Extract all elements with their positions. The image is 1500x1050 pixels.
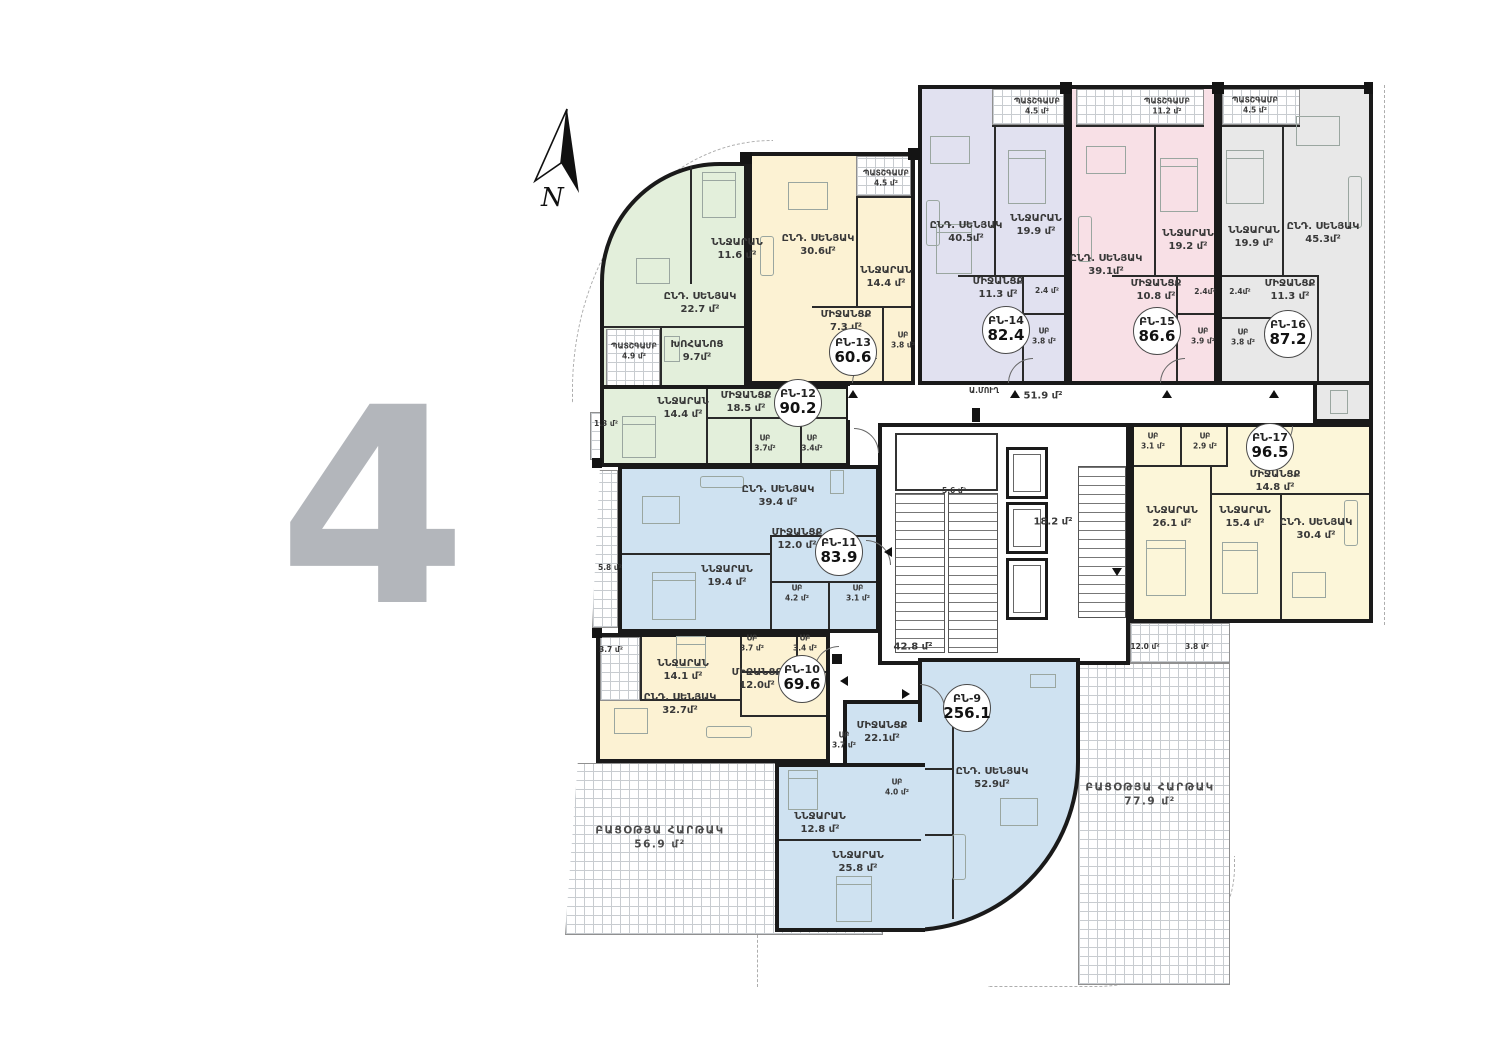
room-label: ԸՆԴ. ՍԵՆՅԱԿ39.1մ²	[1070, 252, 1143, 278]
floor-number: 4	[278, 398, 467, 621]
bed-furniture	[702, 172, 736, 218]
room-label: ՄԻՋԱՆՑՔ11.3 մ²	[973, 275, 1024, 301]
room-label: ՍԲ3.4մ²	[801, 433, 822, 453]
wall-pier	[1364, 82, 1373, 94]
bed-furniture	[1222, 542, 1258, 594]
entrance-arrow	[1162, 390, 1172, 398]
room-label: ՍԲ3.8 մ²	[1032, 326, 1056, 346]
sofa-furniture	[952, 834, 966, 880]
apartment-badge-bn-16: ԲՆ-1687.2	[1264, 310, 1312, 358]
room-label: ԸՆԴ. ՍԵՆՅԱԿ32.7մ²	[644, 691, 717, 717]
room-label: ՍԲ2.9 մ²	[1193, 431, 1217, 451]
garbage-chute-box	[972, 408, 980, 422]
room-label: ՆՆՋԱՐԱՆ26.1 մ²	[1146, 504, 1197, 530]
room-label: ՆՆՋԱՐԱՆ14.4 մ²	[657, 395, 708, 421]
room-label: ՆՆՋԱՐԱՆ12.8 մ²	[794, 810, 845, 836]
site-boundary-dashed	[1384, 85, 1386, 625]
room-label: ՆՆՋԱՐԱՆ19.4 մ²	[701, 563, 752, 589]
room-label: ՍԲ3.7 մ²	[832, 730, 856, 750]
room-label: ԸՆԴ. ՍԵՆՅԱԿ30.6մ²	[782, 232, 855, 258]
terrace-strip-label: 12.0 մ²	[1130, 642, 1159, 652]
elevator	[1006, 558, 1048, 620]
room-label: ԸՆԴ. ՍԵՆՅԱԿ39.4 մ²	[742, 483, 815, 509]
corridor-area-label: 42.8 մ²	[894, 641, 933, 654]
entrance-arrow	[1269, 390, 1279, 398]
room-label: ՍԲ3.7 մ²	[740, 633, 764, 653]
bed-furniture	[1226, 150, 1264, 204]
apartment-badge-bn-14: ԲՆ-1482.4	[982, 306, 1030, 354]
dining-table-furniture	[1292, 572, 1326, 598]
terrace-label: ԲԱՑՕԹՅԱ ՀԱՐԹԱԿ77.9 մ²	[1085, 781, 1214, 808]
bed-furniture	[1008, 150, 1046, 204]
room-label: ՄԻՋԱՆՑՔ14.8 մ²	[1250, 468, 1301, 494]
stairs-main	[895, 493, 945, 653]
bed-furniture	[788, 770, 818, 810]
apartment-badge-bn-12: ԲՆ-1290.2	[774, 379, 822, 427]
bed-furniture	[836, 876, 872, 922]
apartment-badge-bn-11: ԲՆ-1183.9	[815, 528, 863, 576]
entrance-arrow	[840, 676, 848, 686]
room-label: ՊԱՏՇԳԱՄԲ11.2 մ²	[1144, 96, 1190, 116]
wall-pier	[832, 654, 842, 664]
room-label: ՊԱՏՇԳԱՄԲ4.9 մ²	[611, 341, 657, 361]
stairwell-area-label: 5.6 մ²	[942, 486, 966, 496]
room-label: ՍԲ3.9 մ²	[1191, 326, 1215, 346]
room-label: ՄԻՋԱՆՑՔ11.3 մ²	[1265, 277, 1316, 303]
entrance-arrow	[1010, 390, 1020, 398]
room-label: ՍԲ3.4 մ²	[793, 633, 817, 653]
apartment-badge-bn-15: ԲՆ-1586.6	[1133, 307, 1181, 355]
room-label: ՍԲ3.1 մ²	[846, 583, 870, 603]
wall-pier	[1060, 82, 1072, 94]
wall-pier	[592, 458, 602, 468]
sofa-furniture	[706, 726, 752, 738]
room-label: ՆՆՋԱՐԱՆ14.1 մ²	[657, 657, 708, 683]
room-label: ՆՆՋԱՐԱՆ11.6 մ²	[711, 236, 762, 262]
room-label: ՍԲ3.8 մ²	[891, 330, 915, 350]
bed-furniture	[1160, 158, 1198, 212]
entrance-arrow	[848, 390, 858, 398]
bed-furniture	[652, 572, 696, 620]
room-label: ՍԲ4.2 մ²	[785, 583, 809, 603]
dining-table-furniture	[930, 136, 970, 164]
terrace-right	[1078, 663, 1230, 985]
entrance-arrow	[884, 547, 892, 557]
room-label: ՊԱՏՇԳԱՄԲ4.5 մ²	[1014, 96, 1060, 116]
entrance-arrow	[902, 689, 910, 699]
stove-furniture	[1330, 390, 1348, 414]
dining-table-furniture	[788, 182, 828, 210]
dining-table-furniture	[636, 258, 670, 284]
stove-furniture	[830, 470, 844, 494]
room-label: ՍԲ3.8 մ²	[1231, 327, 1255, 347]
bed-furniture	[1146, 540, 1186, 596]
sofa-furniture	[700, 476, 744, 488]
room-label: ԽՈՀԱՆՈՑ9.7մ²	[670, 338, 723, 364]
room-label: ՊԱՏՇԳԱՄԲ4.5 մ²	[1232, 95, 1278, 115]
stairs-secondary	[1078, 466, 1126, 618]
wall-pier	[740, 152, 752, 164]
room-label: 2.4մ²	[1194, 287, 1215, 297]
room-label: ՆՆՋԱՐԱՆ19.9 մ²	[1010, 212, 1061, 238]
stair-direction-arrow	[1112, 568, 1122, 576]
room-label: ՍԲ3.7մ²	[754, 433, 775, 453]
apartment-badge-bn-9: ԲՆ-9256.1	[943, 684, 991, 732]
room-label: ՄԻՋԱՆՑՔ22.1մ²	[857, 719, 908, 745]
stove-furniture	[1030, 674, 1056, 688]
dining-table-furniture	[1086, 146, 1126, 174]
room-label: 2.4մ²	[1229, 287, 1250, 297]
north-arrow-icon: N	[523, 103, 595, 219]
room-label: ՊԱՏՇԳԱՄԲ4.5 մ²	[863, 168, 909, 188]
balcony-bn-11	[592, 470, 618, 628]
room-label: ՄԻՋԱՆՑՔ12.0մ²	[732, 666, 783, 692]
apartment-badge-bn-17: ԲՆ-1796.5	[1246, 423, 1294, 471]
wall-pier	[1212, 82, 1224, 94]
elevator	[1006, 447, 1048, 499]
room-label: ՆՆՋԱՐԱՆ19.9 մ²	[1228, 224, 1279, 250]
apartment-badge-bn-10: ԲՆ-1069.6	[778, 655, 826, 703]
stairs-main	[948, 493, 998, 653]
north-label: N	[540, 183, 565, 213]
stair-landing	[895, 433, 998, 491]
room-label: ՄԻՋԱՆՑՔ18.5 մ²	[721, 389, 772, 415]
room-label: ՆՆՋԱՐԱՆ25.8 մ²	[832, 849, 883, 875]
bed-furniture	[622, 416, 656, 458]
room-label: ԸՆԴ. ՍԵՆՅԱԿ22.7 մ²	[664, 290, 737, 316]
room-label: ԸՆԴ. ՍԵՆՅԱԿ45.3մ²	[1287, 220, 1360, 246]
room-label: ՍԲ3.1 մ²	[1141, 431, 1165, 451]
room-label: 2.4 մ²	[1035, 286, 1059, 296]
terrace-label: ԲԱՑՕԹՅԱ ՀԱՐԹԱԿ56.9 մ²	[595, 824, 724, 851]
dining-table-furniture	[1296, 116, 1340, 146]
wall-pier	[592, 628, 602, 638]
lobby-area-label: 18.2 մ²	[1034, 516, 1073, 529]
room-label: ՄԻՋԱՆՑՔ10.8 մ²	[1131, 277, 1182, 303]
room-label: ՆՆՋԱՐԱՆ19.2 մ²	[1162, 227, 1213, 253]
site-boundary-dashed	[757, 935, 759, 987]
wall-pier	[908, 148, 920, 160]
corridor-upper	[848, 386, 1313, 423]
room-label: 1.3 մ²	[594, 419, 618, 429]
floor-plan-canvas: 4 N	[0, 0, 1500, 1050]
dining-table-furniture	[642, 496, 680, 524]
corridor-area-label: 51.9 մ²	[1024, 390, 1063, 403]
terrace-strip-label: 3.8 մ²	[1185, 642, 1209, 652]
dining-table-furniture	[1000, 798, 1038, 826]
room-label: 5.8 մ²	[598, 563, 622, 573]
room-label: ԸՆԴ. ՍԵՆՅԱԿ52.9մ²	[956, 765, 1029, 791]
room-label: 3.7 մ²	[599, 645, 623, 655]
room-label: ՍԲ4.0 մ²	[885, 777, 909, 797]
garbage-chute-label: Ա.ՄՈՒՂ	[969, 386, 999, 396]
apartment-badge-bn-13: ԲՆ-1360.6	[829, 328, 877, 376]
room-label: ՆՆՋԱՐԱՆ14.4 մ²	[860, 264, 911, 290]
room-label: ԸՆԴ. ՍԵՆՅԱԿ40.5մ²	[930, 219, 1003, 245]
room-label: ՆՆՋԱՐԱՆ15.4 մ²	[1219, 504, 1270, 530]
room-label: ԸՆԴ. ՍԵՆՅԱԿ30.4 մ²	[1280, 516, 1353, 542]
